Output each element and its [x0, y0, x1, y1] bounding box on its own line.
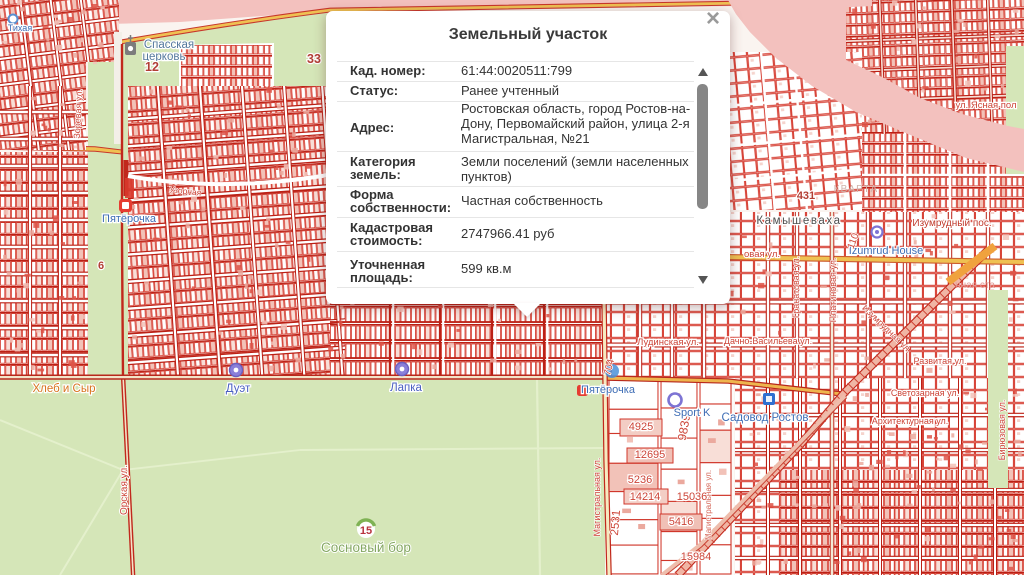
svg-text:2531: 2531 [609, 509, 623, 536]
svg-text:Пятёрочка: Пятёрочка [102, 213, 157, 225]
svg-text:Sport K: Sport K [674, 407, 711, 419]
svg-text:Тихая: Тихая [8, 23, 33, 33]
svg-text:Пятёрочка: Пятёрочка [581, 384, 636, 396]
svg-text:Изумрудный пос.: Изумрудный пос. [912, 218, 991, 229]
svg-text:431: 431 [797, 190, 815, 202]
svg-text:Светозарная ул.: Светозарная ул. [891, 388, 959, 398]
svg-text:33: 33 [307, 52, 321, 66]
svg-text:Архитектурная ул.: Архитектурная ул. [872, 416, 949, 426]
svg-text:Садовод Ростов: Садовод Ростов [722, 412, 809, 424]
svg-text:нная ста: нная ста [955, 280, 995, 291]
svg-text:15036: 15036 [677, 491, 708, 503]
svg-text:12695: 12695 [635, 449, 666, 461]
svg-text:Магистральная ул.: Магистральная ул. [704, 470, 713, 540]
svg-text:Дачно-Васильева ул.: Дачно-Васильева ул. [724, 336, 812, 346]
svg-text:5416: 5416 [669, 516, 693, 528]
svg-text:Хлеб и Сыр: Хлеб и Сыр [32, 383, 95, 395]
svg-text:Бирюзовая ул.: Бирюзовая ул. [997, 400, 1007, 461]
svg-text:6: 6 [98, 260, 104, 272]
svg-text:12: 12 [145, 60, 159, 74]
svg-text:Izumrud House: Izumrud House [849, 245, 924, 257]
svg-text:овая ул.: овая ул. [744, 249, 780, 260]
svg-text:Платиновая ул.: Платиновая ул. [828, 258, 838, 323]
svg-text:Спасская: Спасская [144, 39, 194, 51]
svg-text:ул. Ясная пол: ул. Ясная пол [955, 100, 1016, 111]
svg-text:5236: 5236 [628, 474, 652, 486]
svg-text:4925: 4925 [629, 421, 653, 433]
svg-text:Гранатовая ул.: Гранатовая ул. [791, 256, 801, 318]
svg-text:Камышеваха: Камышеваха [756, 215, 841, 227]
svg-text:Лудинская ул.: Лудинская ул. [637, 337, 699, 348]
svg-text:15: 15 [360, 525, 372, 537]
svg-text:Дуэт: Дуэт [226, 383, 251, 395]
svg-text:Орская ул.: Орская ул. [119, 465, 130, 515]
svg-text:Магистральная ул.: Магистральная ул. [592, 458, 602, 537]
svg-text:Развитая ул.: Развитая ул. [914, 356, 967, 366]
svg-text:Сосновый бор: Сосновый бор [321, 540, 411, 555]
svg-text:15984: 15984 [681, 551, 712, 563]
svg-text:14214: 14214 [630, 491, 661, 503]
svg-text:Лапка: Лапка [390, 382, 422, 394]
svg-text:КВАРТА: КВАРТА [834, 184, 879, 195]
